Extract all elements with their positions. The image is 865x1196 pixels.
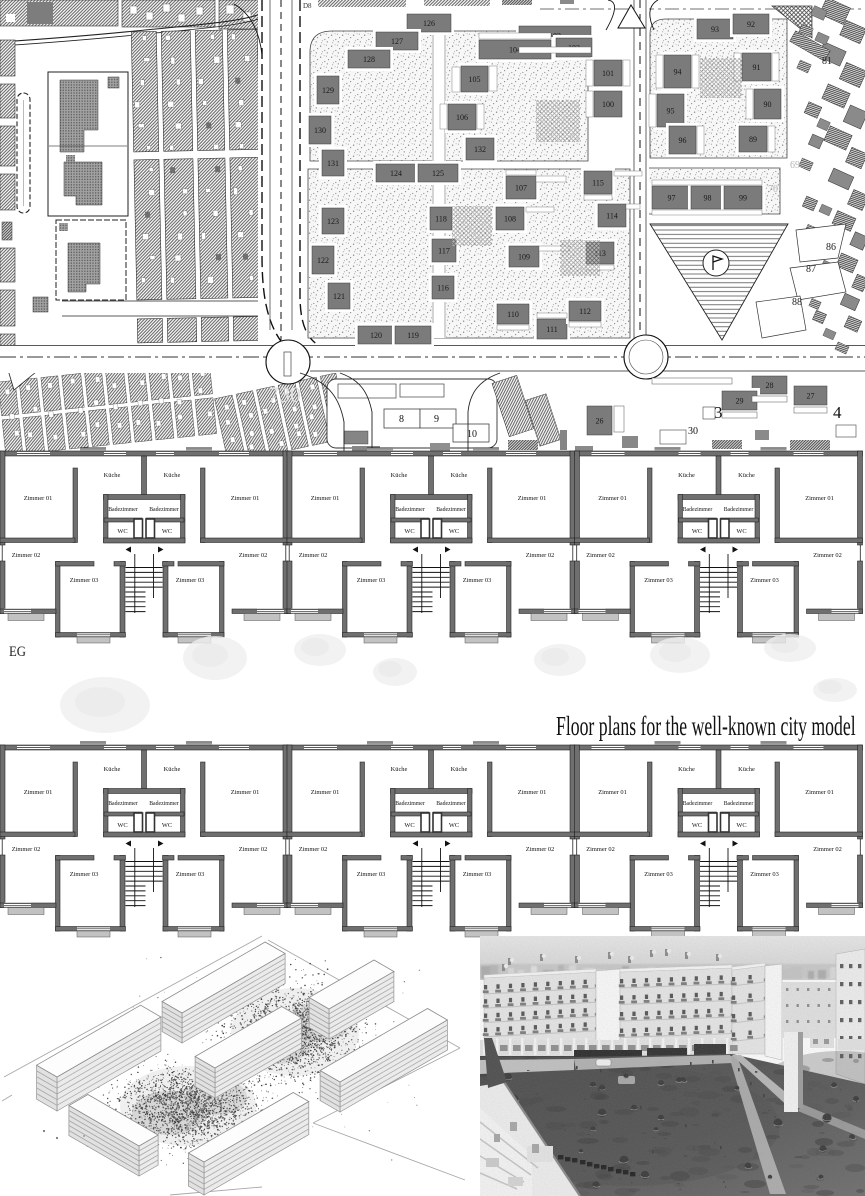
svg-text:114: 114 [606, 211, 618, 220]
svg-text:132: 132 [474, 145, 486, 154]
svg-text:29: 29 [736, 396, 744, 405]
svg-text:127: 127 [391, 37, 403, 46]
svg-text:28: 28 [766, 381, 774, 390]
svg-text:10: 10 [467, 429, 477, 440]
svg-text:8: 8 [399, 414, 404, 425]
svg-text:122: 122 [317, 256, 329, 265]
svg-text:121: 121 [333, 292, 345, 301]
svg-text:87: 87 [806, 264, 816, 275]
svg-text:107: 107 [515, 183, 527, 192]
svg-text:730: 730 [268, 382, 301, 407]
svg-text:89: 89 [749, 135, 757, 144]
svg-text:108: 108 [504, 214, 516, 223]
svg-text:30: 30 [688, 426, 698, 437]
svg-text:110: 110 [507, 310, 519, 319]
svg-text:81: 81 [822, 56, 832, 67]
svg-text:69: 69 [790, 160, 800, 171]
svg-text:126: 126 [423, 19, 435, 28]
svg-text:100: 100 [602, 100, 614, 109]
svg-text:106: 106 [456, 113, 468, 122]
svg-text:9: 9 [434, 414, 439, 425]
svg-text:90: 90 [764, 100, 772, 109]
svg-text:119: 119 [407, 331, 419, 340]
svg-text:96: 96 [679, 136, 687, 145]
svg-text:105: 105 [469, 75, 481, 84]
svg-text:125: 125 [432, 169, 444, 178]
svg-text:124: 124 [390, 169, 402, 178]
svg-text:93: 93 [711, 25, 719, 34]
svg-text:4: 4 [833, 403, 842, 422]
svg-text:128: 128 [363, 55, 375, 64]
svg-text:131: 131 [327, 159, 339, 168]
svg-text:112: 112 [579, 307, 591, 316]
svg-text:99: 99 [739, 193, 747, 202]
svg-text:92: 92 [747, 20, 755, 29]
svg-text:118: 118 [435, 214, 447, 223]
svg-text:115: 115 [592, 178, 604, 187]
svg-text:116: 116 [437, 283, 449, 292]
svg-text:86: 86 [826, 242, 836, 253]
svg-text:123: 123 [327, 217, 339, 226]
svg-text:27: 27 [807, 391, 815, 400]
svg-text:117: 117 [438, 246, 450, 255]
svg-text:130: 130 [314, 126, 326, 135]
svg-text:88: 88 [792, 297, 802, 308]
svg-text:101: 101 [602, 69, 614, 78]
svg-text:95: 95 [667, 106, 675, 115]
svg-text:94: 94 [674, 67, 682, 76]
svg-text:120: 120 [370, 331, 382, 340]
svg-text:97: 97 [668, 193, 676, 202]
svg-text:111: 111 [546, 325, 557, 334]
svg-text:129: 129 [322, 86, 334, 95]
svg-text:91: 91 [753, 63, 761, 72]
svg-text:98: 98 [704, 193, 712, 202]
svg-text:26: 26 [596, 416, 604, 425]
svg-text:109: 109 [518, 252, 530, 261]
svg-text:D8: D8 [303, 2, 312, 10]
svg-text:70: 70 [768, 184, 778, 195]
